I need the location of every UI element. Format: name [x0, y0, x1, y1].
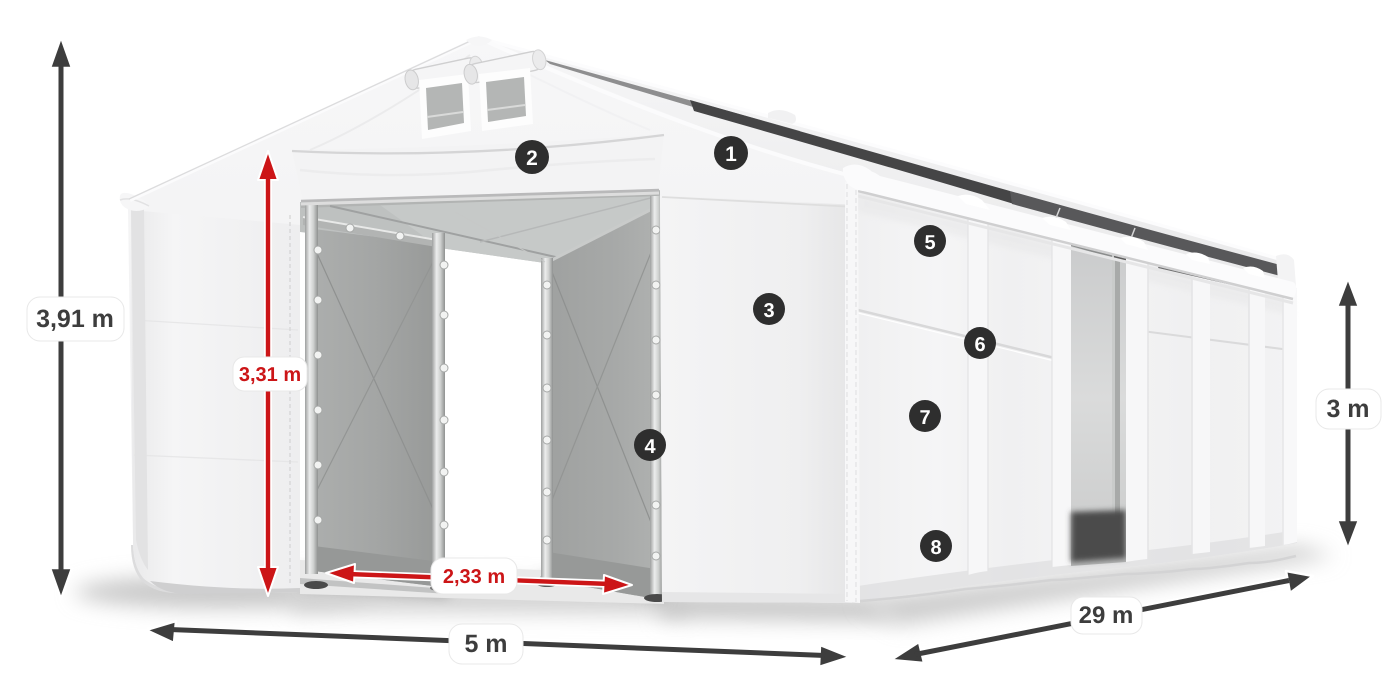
- svg-text:5 m: 5 m: [464, 630, 507, 658]
- svg-text:5: 5: [924, 232, 935, 254]
- svg-text:2: 2: [526, 147, 538, 170]
- svg-text:3 m: 3 m: [1326, 395, 1369, 423]
- svg-text:7: 7: [919, 407, 930, 429]
- svg-text:3: 3: [763, 300, 774, 322]
- svg-text:6: 6: [974, 334, 985, 356]
- svg-text:3,91 m: 3,91 m: [36, 305, 114, 333]
- svg-text:2,33 m: 2,33 m: [443, 566, 505, 588]
- svg-text:4: 4: [644, 436, 656, 458]
- svg-text:3,31 m: 3,31 m: [239, 364, 301, 386]
- svg-text:8: 8: [930, 537, 941, 559]
- svg-text:1: 1: [725, 143, 737, 166]
- svg-text:29 m: 29 m: [1079, 602, 1134, 629]
